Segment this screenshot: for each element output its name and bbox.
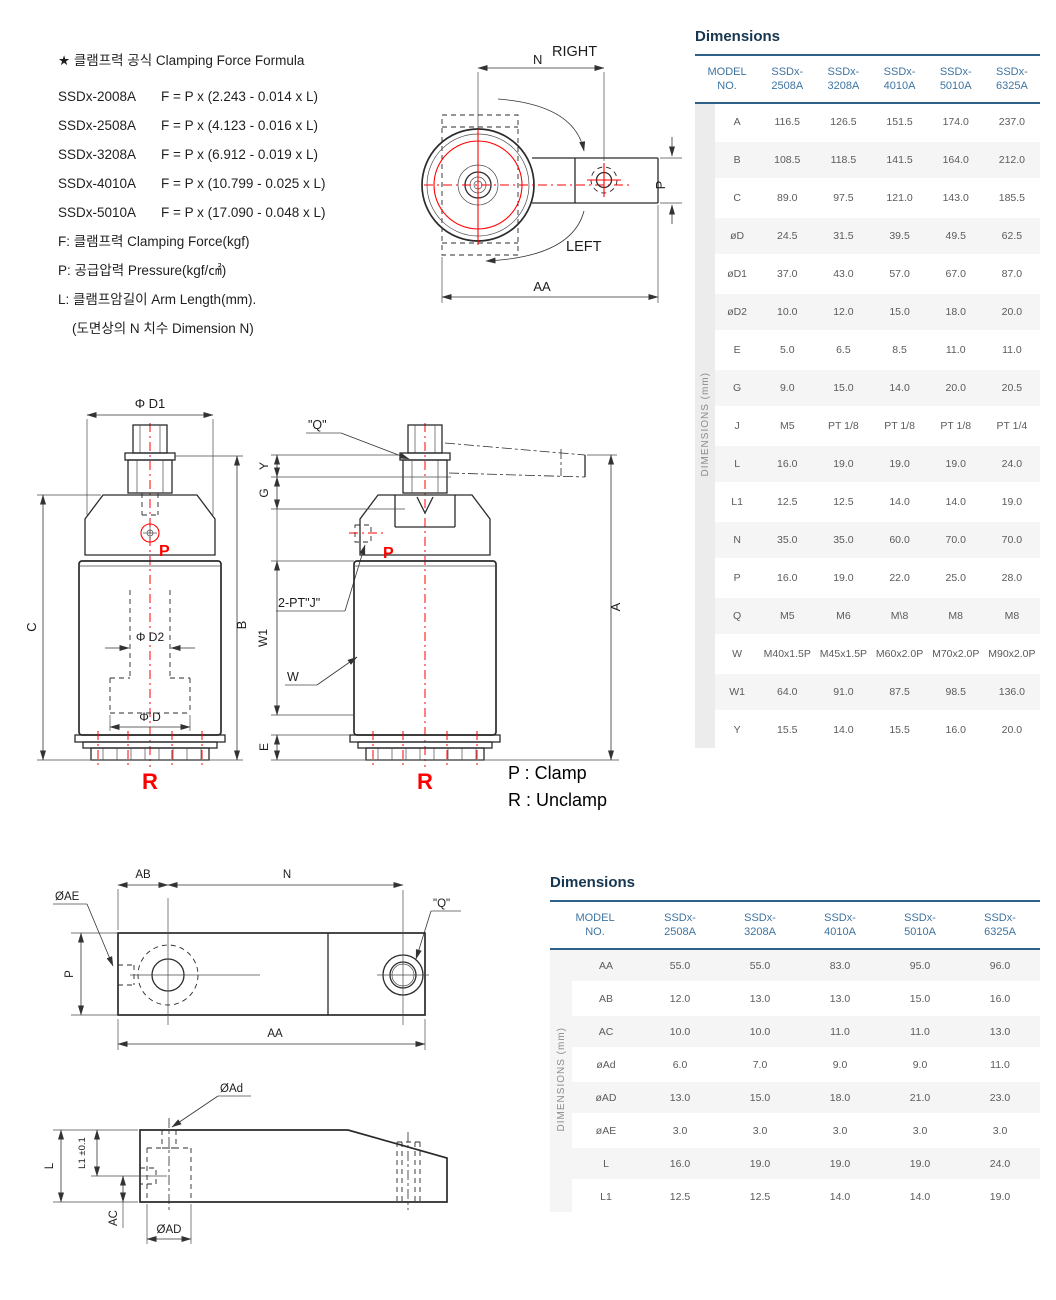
- dim-label-p: P: [653, 181, 668, 190]
- table-2-title: Dimensions: [550, 874, 1040, 891]
- dimension-value: 10.0: [759, 293, 815, 331]
- table-1-title: Dimensions: [695, 28, 1040, 45]
- dimension-value: 95.0: [880, 949, 960, 982]
- dimension-label: øD2: [715, 293, 759, 331]
- dimension-value: 3.0: [800, 1114, 880, 1147]
- dimension-value: 19.0: [720, 1147, 800, 1180]
- dim-label-y: Y: [257, 462, 271, 470]
- dimension-label: E: [715, 331, 759, 369]
- model-header: SSDx-5010A: [928, 55, 984, 103]
- dimension-value: 19.0: [960, 1180, 1040, 1213]
- table-row: øAd6.07.09.09.011.0: [550, 1048, 1040, 1081]
- arm-plan-view: AB N ØAE "Q" P AA: [53, 869, 461, 1050]
- dimension-value: 3.0: [640, 1114, 720, 1147]
- dimension-value: 13.0: [800, 982, 880, 1015]
- port-legend: P : Clamp R : Unclamp: [508, 760, 607, 814]
- dim-label-c: C: [25, 622, 39, 631]
- model-header: SSDx-6325A: [960, 901, 1040, 949]
- dimension-value: 14.0: [928, 483, 984, 521]
- dimension-label: C: [715, 179, 759, 217]
- dimension-value: PT 1/8: [871, 407, 927, 445]
- dimension-label: P: [715, 559, 759, 597]
- formula-model: SSDx-3208A: [58, 140, 161, 169]
- dim-label-ac: AC: [108, 1210, 120, 1226]
- dimension-value: 164.0: [928, 141, 984, 179]
- table-row: N35.035.060.070.070.0: [695, 521, 1040, 559]
- dimension-value: 98.5: [928, 673, 984, 711]
- table-row: G9.015.014.020.020.5: [695, 369, 1040, 407]
- dimension-value: 6.0: [640, 1048, 720, 1081]
- dimension-value: 55.0: [720, 949, 800, 982]
- formula-expression: F = P x (17.090 - 0.048 x L): [161, 198, 325, 227]
- dimension-value: 55.0: [640, 949, 720, 982]
- dimension-label: AB: [572, 982, 640, 1015]
- front-view-left: Φ D1 P Φ D2: [25, 396, 249, 794]
- formula-note: F: 클램프력 Clamping Force(kgf): [58, 227, 418, 256]
- dimensions-table-1-wrap: Dimensions MODEL NO.SSDx-2508ASSDx-3208A…: [695, 28, 1040, 750]
- dimension-value: 13.0: [960, 1015, 1040, 1048]
- dimension-value: 20.0: [984, 711, 1040, 749]
- dimension-value: 87.5: [871, 673, 927, 711]
- dim-label-d2: Φ D2: [136, 630, 165, 644]
- formula-model: SSDx-4010A: [58, 169, 161, 198]
- dimension-value: 143.0: [928, 179, 984, 217]
- table-row: DIMENSIONS (mm)AA55.055.083.095.096.0: [550, 949, 1040, 982]
- dimension-value: 96.0: [960, 949, 1040, 982]
- dimension-value: 23.0: [960, 1081, 1040, 1114]
- dimension-value: 24.0: [984, 445, 1040, 483]
- dimension-value: 35.0: [759, 521, 815, 559]
- formula-expression: F = P x (4.123 - 0.016 x L): [161, 111, 318, 140]
- dimensions-table-2-wrap: Dimensions MODEL NO.SSDx-2508ASSDx-3208A…: [550, 874, 1040, 1214]
- dimension-value: 136.0: [984, 673, 1040, 711]
- front-view-right: "Q" P 2-PT"J" W: [256, 418, 623, 794]
- formula-line: SSDx-2508AF = P x (4.123 - 0.016 x L): [58, 111, 418, 140]
- formula-expression: F = P x (2.243 - 0.014 x L): [161, 82, 318, 111]
- table-row: JM5PT 1/8PT 1/8PT 1/8PT 1/4: [695, 407, 1040, 445]
- table-row: øD24.531.539.549.562.5: [695, 217, 1040, 255]
- dimension-value: 22.0: [871, 559, 927, 597]
- dimension-label: AC: [572, 1015, 640, 1048]
- dimension-value: 89.0: [759, 179, 815, 217]
- dimension-value: 11.0: [960, 1048, 1040, 1081]
- formula-line: SSDx-2008AF = P x (2.243 - 0.014 x L): [58, 82, 418, 111]
- table-row: Y15.514.015.516.020.0: [695, 711, 1040, 749]
- dimension-label: L1: [715, 483, 759, 521]
- dimension-value: 15.5: [871, 711, 927, 749]
- dimension-label: øD: [715, 217, 759, 255]
- model-header: SSDx-2508A: [759, 55, 815, 103]
- formula-expression: F = P x (10.799 - 0.025 x L): [161, 169, 325, 198]
- dimension-value: 20.0: [984, 293, 1040, 331]
- dimension-value: 108.5: [759, 141, 815, 179]
- dimension-value: 118.5: [815, 141, 871, 179]
- dimension-value: 8.5: [871, 331, 927, 369]
- dimension-value: 19.0: [815, 559, 871, 597]
- dimension-label: W: [715, 635, 759, 673]
- dimension-value: 14.0: [871, 369, 927, 407]
- dimension-value: 15.0: [815, 369, 871, 407]
- dimension-value: 9.0: [880, 1048, 960, 1081]
- dimension-value: M\8: [871, 597, 927, 635]
- dimension-value: 13.0: [640, 1081, 720, 1114]
- dimension-value: 12.5: [640, 1180, 720, 1213]
- dimension-label: Q: [715, 597, 759, 635]
- dim-label-l1: L1 ±0.1: [77, 1137, 88, 1169]
- dimension-value: 151.5: [871, 103, 927, 141]
- table-row: E5.06.58.511.011.0: [695, 331, 1040, 369]
- model-header: SSDx-4010A: [800, 901, 880, 949]
- dim-label-n: N: [533, 52, 542, 67]
- dimension-value: 12.0: [640, 982, 720, 1015]
- dimension-label: N: [715, 521, 759, 559]
- dimension-value: 12.5: [720, 1180, 800, 1213]
- dim-label-ad: ØAD: [157, 1224, 182, 1236]
- table-row: L16.019.019.019.024.0: [550, 1147, 1040, 1180]
- dimension-value: 70.0: [984, 521, 1040, 559]
- formula-model: SSDx-2508A: [58, 111, 161, 140]
- port-p-label-2: P: [383, 545, 394, 562]
- dimension-value: 14.0: [815, 711, 871, 749]
- table-row: L16.019.019.019.024.0: [695, 445, 1040, 483]
- dimension-value: 64.0: [759, 673, 815, 711]
- table-row: L112.512.514.014.019.0: [550, 1180, 1040, 1213]
- formula-list: SSDx-2008AF = P x (2.243 - 0.014 x L)SSD…: [58, 82, 418, 227]
- formula-line: SSDx-5010AF = P x (17.090 - 0.048 x L): [58, 198, 418, 227]
- dimension-value: 14.0: [800, 1180, 880, 1213]
- dimension-label: øD1: [715, 255, 759, 293]
- dimension-value: 237.0: [984, 103, 1040, 141]
- dimension-value: 49.5: [928, 217, 984, 255]
- dimension-value: 15.0: [720, 1081, 800, 1114]
- dimension-value: M8: [984, 597, 1040, 635]
- dim-label-e: E: [257, 743, 271, 751]
- dimensions-mm-side-label: DIMENSIONS (mm): [550, 949, 572, 1213]
- dim-label-aa: AA: [533, 279, 551, 294]
- dimension-label: øAD: [572, 1081, 640, 1114]
- port-p-label: P: [159, 543, 170, 560]
- dimension-value: 9.0: [759, 369, 815, 407]
- dimension-value: 19.0: [871, 445, 927, 483]
- formula-expression: F = P x (6.912 - 0.019 x L): [161, 140, 318, 169]
- dimension-value: 116.5: [759, 103, 815, 141]
- dimension-value: 83.0: [800, 949, 880, 982]
- formula-line: SSDx-4010AF = P x (10.799 - 0.025 x L): [58, 169, 418, 198]
- dimension-value: PT 1/8: [815, 407, 871, 445]
- formula-title: ★ 클램프력 공식 Clamping Force Formula: [58, 46, 418, 75]
- dimension-value: M45x1.5P: [815, 635, 871, 673]
- unclamp-r-label-2: R: [417, 769, 433, 794]
- dimension-value: 87.0: [984, 255, 1040, 293]
- dimension-label: øAE: [572, 1114, 640, 1147]
- formula-notes: F: 클램프력 Clamping Force(kgf)P: 공급압력 Press…: [58, 227, 418, 343]
- dimension-value: 126.5: [815, 103, 871, 141]
- swing-arc-right: [498, 99, 584, 151]
- table-row: B108.5118.5141.5164.0212.0: [695, 141, 1040, 179]
- dimension-value: 18.0: [928, 293, 984, 331]
- dim-label-d: Φ D: [139, 710, 161, 724]
- top-view-drawing: N RIGHT: [420, 35, 700, 320]
- dimension-value: 11.0: [800, 1015, 880, 1048]
- dimension-value: 19.0: [928, 445, 984, 483]
- dimension-value: 24.0: [960, 1147, 1040, 1180]
- model-header: SSDx-3208A: [720, 901, 800, 949]
- dimension-value: 5.0: [759, 331, 815, 369]
- dimension-value: 16.0: [928, 711, 984, 749]
- dim-label-d1: Φ D1: [135, 396, 166, 411]
- dim-label-ad-small: ØAd: [220, 1083, 243, 1095]
- dimension-value: 16.0: [960, 982, 1040, 1015]
- dimension-value: 25.0: [928, 559, 984, 597]
- dimension-value: 174.0: [928, 103, 984, 141]
- dimension-value: 15.0: [871, 293, 927, 331]
- dimension-value: 15.5: [759, 711, 815, 749]
- dim-label-g: G: [257, 488, 271, 497]
- dimension-value: 14.0: [880, 1180, 960, 1213]
- dimension-value: PT 1/8: [928, 407, 984, 445]
- formula-model: SSDx-5010A: [58, 198, 161, 227]
- swing-right-label: RIGHT: [552, 44, 597, 60]
- table-row: QM5M6M\8M8M8: [695, 597, 1040, 635]
- dimension-value: 28.0: [984, 559, 1040, 597]
- dimension-value: 3.0: [880, 1114, 960, 1147]
- arm-side-view: L L1 ±0.1 AC ØAd ØAD: [44, 1083, 447, 1244]
- swing-arm-plan: [532, 158, 658, 203]
- dimension-value: M90x2.0P: [984, 635, 1040, 673]
- dimension-value: 19.0: [815, 445, 871, 483]
- model-header: SSDx-4010A: [871, 55, 927, 103]
- dimension-value: 35.0: [815, 521, 871, 559]
- dimension-value: 16.0: [640, 1147, 720, 1180]
- dim-label-n2: N: [283, 869, 291, 881]
- dimension-label: øAd: [572, 1048, 640, 1081]
- dimension-value: 11.0: [928, 331, 984, 369]
- datasheet-page: ★ 클램프력 공식 Clamping Force Formula SSDx-20…: [0, 0, 1056, 1300]
- dimension-value: M5: [759, 407, 815, 445]
- dimension-value: 11.0: [984, 331, 1040, 369]
- dimension-value: 12.0: [815, 293, 871, 331]
- dimension-value: 18.0: [800, 1081, 880, 1114]
- formula-note: (도면상의 N 치수 Dimension N): [58, 314, 418, 343]
- table-row: WM40x1.5PM45x1.5PM60x2.0PM70x2.0PM90x2.0…: [695, 635, 1040, 673]
- model-header: SSDx-6325A: [984, 55, 1040, 103]
- table-row: W164.091.087.598.5136.0: [695, 673, 1040, 711]
- dimension-value: M5: [759, 597, 815, 635]
- dimension-value: 97.5: [815, 179, 871, 217]
- table-row: DIMENSIONS (mm)A116.5126.5151.5174.0237.…: [695, 103, 1040, 141]
- arm-views-drawing: AB N ØAE "Q" P AA: [25, 860, 520, 1260]
- dimension-value: M70x2.0P: [928, 635, 984, 673]
- dimension-value: 39.5: [871, 217, 927, 255]
- dimensions-table-1: MODEL NO.SSDx-2508ASSDx-3208ASSDx-4010AS…: [695, 54, 1040, 750]
- dimension-value: 16.0: [759, 559, 815, 597]
- dimension-value: 57.0: [871, 255, 927, 293]
- dimension-value: 10.0: [640, 1015, 720, 1048]
- formula-note: L: 클램프암길이 Arm Length(mm).: [58, 285, 418, 314]
- dimension-value: 91.0: [815, 673, 871, 711]
- dimension-value: M8: [928, 597, 984, 635]
- model-no-header: MODEL NO.: [695, 55, 759, 103]
- table-row: øD137.043.057.067.087.0: [695, 255, 1040, 293]
- dimension-value: 20.5: [984, 369, 1040, 407]
- dim-label-a: A: [608, 602, 623, 611]
- dimension-value: M60x2.0P: [871, 635, 927, 673]
- dimension-label: W1: [715, 673, 759, 711]
- dimensions-mm-side-label: DIMENSIONS (mm): [695, 103, 715, 749]
- legend-unclamp: R : Unclamp: [508, 787, 607, 814]
- table-row: øAE3.03.03.03.03.0: [550, 1114, 1040, 1147]
- dimension-value: 11.0: [880, 1015, 960, 1048]
- model-header: SSDx-5010A: [880, 901, 960, 949]
- dimension-value: 10.0: [720, 1015, 800, 1048]
- table-row: AC10.010.011.011.013.0: [550, 1015, 1040, 1048]
- dimension-value: 20.0: [928, 369, 984, 407]
- dimension-value: 19.0: [800, 1147, 880, 1180]
- dimension-value: 16.0: [759, 445, 815, 483]
- unclamp-r-label: R: [142, 769, 158, 794]
- table-row: C89.097.5121.0143.0185.5: [695, 179, 1040, 217]
- dimension-value: 60.0: [871, 521, 927, 559]
- dimensions-table-2: MODEL NO.SSDx-2508ASSDx-3208ASSDx-4010AS…: [550, 900, 1040, 1214]
- dim-label-p2: P: [64, 970, 76, 978]
- dim-label-l: L: [44, 1162, 56, 1169]
- q-thread-label-2: "Q": [433, 898, 450, 910]
- dim-label-b: B: [234, 621, 249, 630]
- dimension-value: 31.5: [815, 217, 871, 255]
- dimension-label: L: [715, 445, 759, 483]
- dimension-value: 3.0: [960, 1114, 1040, 1147]
- dim-label-w1: W1: [256, 629, 270, 647]
- dimension-value: 70.0: [928, 521, 984, 559]
- dimension-value: 6.5: [815, 331, 871, 369]
- formula-note: P: 공급압력 Pressure(kgf/㎠): [58, 256, 418, 285]
- dimension-value: 43.0: [815, 255, 871, 293]
- front-views-drawing: Φ D1 P Φ D2: [25, 385, 640, 825]
- formula-model: SSDx-2008A: [58, 82, 161, 111]
- dimension-value: 67.0: [928, 255, 984, 293]
- dimension-label: G: [715, 369, 759, 407]
- dimension-value: 3.0: [720, 1114, 800, 1147]
- dimension-value: M40x1.5P: [759, 635, 815, 673]
- table-row: øD210.012.015.018.020.0: [695, 293, 1040, 331]
- dimension-label: L1: [572, 1180, 640, 1213]
- dimension-value: 121.0: [871, 179, 927, 217]
- dimension-value: M6: [815, 597, 871, 635]
- dimension-value: 9.0: [800, 1048, 880, 1081]
- dimension-value: 12.5: [759, 483, 815, 521]
- dimension-value: 14.0: [871, 483, 927, 521]
- table-row: AB12.013.013.015.016.0: [550, 982, 1040, 1015]
- dimension-value: 7.0: [720, 1048, 800, 1081]
- dimension-value: 13.0: [720, 982, 800, 1015]
- dimension-value: 19.0: [984, 483, 1040, 521]
- dim-label-aa2: AA: [267, 1028, 283, 1040]
- table-row: øAD13.015.018.021.023.0: [550, 1081, 1040, 1114]
- swing-arm-phantom: [445, 443, 585, 477]
- dimension-value: 19.0: [880, 1147, 960, 1180]
- dimension-value: 62.5: [984, 217, 1040, 255]
- dimension-label: AA: [572, 949, 640, 982]
- clamping-force-formula-block: ★ 클램프력 공식 Clamping Force Formula SSDx-20…: [58, 46, 418, 343]
- model-no-header: MODEL NO.: [550, 901, 640, 949]
- formula-line: SSDx-3208AF = P x (6.912 - 0.019 x L): [58, 140, 418, 169]
- port-thread-label: 2-PT"J": [278, 596, 320, 610]
- dimension-value: 185.5: [984, 179, 1040, 217]
- dimension-value: 141.5: [871, 141, 927, 179]
- dim-label-ab: AB: [135, 869, 151, 881]
- model-header: SSDx-2508A: [640, 901, 720, 949]
- swing-left-label: LEFT: [566, 239, 602, 255]
- dimension-value: 212.0: [984, 141, 1040, 179]
- dim-label-ae: ØAE: [55, 891, 80, 903]
- w-thread-label: W: [287, 670, 299, 684]
- table-row: P16.019.022.025.028.0: [695, 559, 1040, 597]
- legend-clamp: P : Clamp: [508, 760, 607, 787]
- model-header: SSDx-3208A: [815, 55, 871, 103]
- dimension-label: Y: [715, 711, 759, 749]
- dimension-value: 21.0: [880, 1081, 960, 1114]
- dimension-value: 15.0: [880, 982, 960, 1015]
- dimension-value: 12.5: [815, 483, 871, 521]
- dimension-value: PT 1/4: [984, 407, 1040, 445]
- dimension-label: J: [715, 407, 759, 445]
- table-row: L112.512.514.014.019.0: [695, 483, 1040, 521]
- dimension-label: B: [715, 141, 759, 179]
- dimension-value: 37.0: [759, 255, 815, 293]
- dimension-value: 24.5: [759, 217, 815, 255]
- dimension-label: A: [715, 103, 759, 141]
- q-thread-label: "Q": [308, 418, 327, 432]
- dimension-label: L: [572, 1147, 640, 1180]
